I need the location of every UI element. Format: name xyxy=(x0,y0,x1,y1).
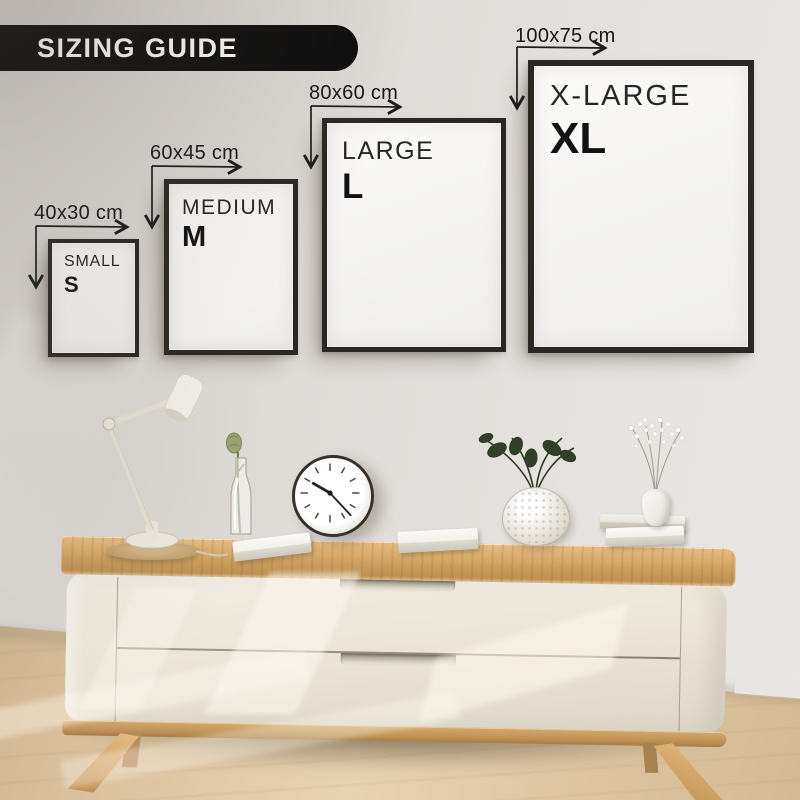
woven-mat xyxy=(106,542,200,560)
wall-clock-icon xyxy=(292,455,374,537)
sideboard-leg-front-right xyxy=(651,743,730,800)
dried-flowers-icon xyxy=(629,418,685,492)
bubble-vase-icon xyxy=(502,487,570,546)
size-card-small: SMALL S xyxy=(48,239,139,357)
dimension-label-medium: 60x45 cm xyxy=(150,142,239,165)
size-abbr-small: S xyxy=(64,273,135,297)
size-abbr-xlarge: XL xyxy=(550,115,748,163)
size-name-small: SMALL xyxy=(64,253,135,271)
bubble-texture xyxy=(505,490,567,543)
banner-title: SIZING GUIDE xyxy=(37,33,238,64)
glass-bottle-vase-icon xyxy=(227,433,252,534)
dimension-label-small: 40x30 cm xyxy=(34,202,123,225)
size-name-xlarge: X-LARGE xyxy=(550,80,748,113)
book-icon xyxy=(398,528,479,553)
size-card-xlarge: X-LARGE XL xyxy=(528,60,754,353)
dimension-label-large: 80x60 cm xyxy=(309,82,398,105)
size-card-large: LARGE L xyxy=(322,118,506,352)
white-vase-icon xyxy=(642,489,670,526)
size-abbr-medium: M xyxy=(182,222,293,254)
dimension-label-xlarge: 100x75 cm xyxy=(515,25,616,48)
frame-mat-medium: MEDIUM M xyxy=(169,184,293,350)
book-stack-icon xyxy=(606,526,685,547)
sizing-guide-image: SIZING GUIDE SMALL S MEDIUM M LARGE L X-… xyxy=(0,0,800,800)
sunlight-patch xyxy=(52,588,202,710)
size-name-large: LARGE xyxy=(342,137,501,166)
frame-mat-large: LARGE L xyxy=(327,123,501,347)
foliage-icon xyxy=(478,432,577,492)
size-card-medium: MEDIUM M xyxy=(164,179,298,355)
frame-mat-small: SMALL S xyxy=(52,243,135,353)
frame-mat-xlarge: X-LARGE XL xyxy=(534,66,748,347)
size-name-medium: MEDIUM xyxy=(182,196,293,220)
size-abbr-large: L xyxy=(342,168,501,207)
sizing-guide-banner: SIZING GUIDE xyxy=(0,25,358,71)
